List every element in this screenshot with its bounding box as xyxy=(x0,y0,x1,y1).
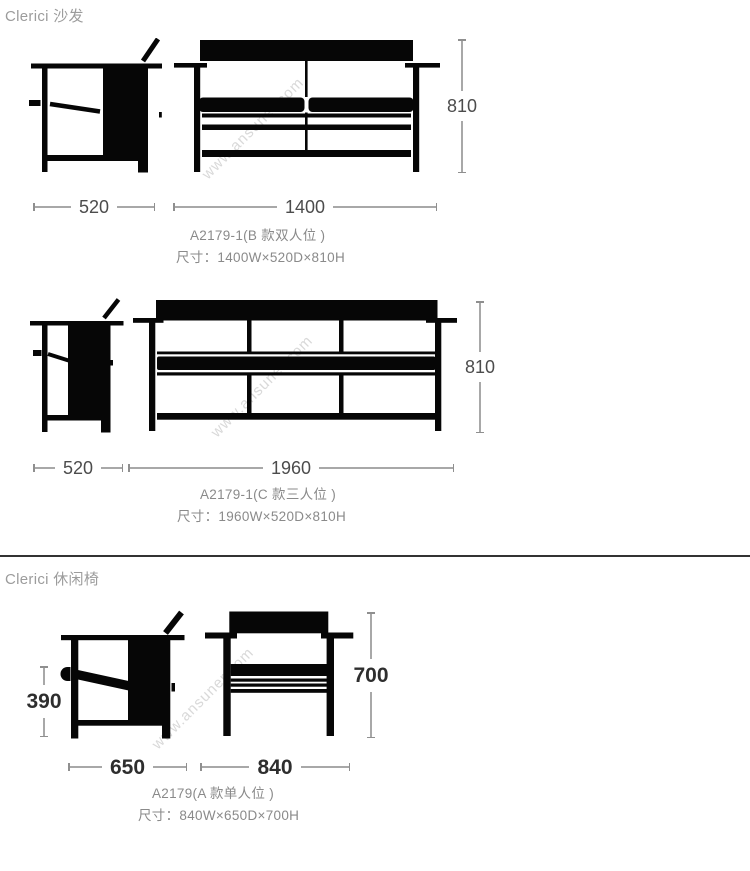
dim-line xyxy=(175,206,277,207)
seat-rail-2 xyxy=(202,125,411,131)
section-heading-chair: Clerici 休闲椅 xyxy=(5,568,99,589)
bottom-stretcher xyxy=(71,720,170,726)
dim-depth-chair: 650 xyxy=(68,755,187,779)
section-heading-sofa: Clerici 沙发 xyxy=(5,5,84,26)
bottom-stretcher xyxy=(42,155,148,161)
seat-rail-diagonal xyxy=(50,104,100,112)
dim-value: 520 xyxy=(71,198,117,216)
armrest-knob xyxy=(33,350,42,356)
armrest-bar xyxy=(61,635,185,640)
dim-line xyxy=(461,121,462,172)
seat-rail-diagonal xyxy=(48,354,69,361)
seat-rail-1 xyxy=(231,679,329,682)
dim-depth-2seat: 520 xyxy=(33,197,155,217)
dim-line xyxy=(35,206,71,207)
seat-rail-diagonal xyxy=(78,670,129,691)
bottom-stretcher xyxy=(42,415,111,421)
armrest-left xyxy=(205,633,237,639)
seat-rail xyxy=(157,372,436,375)
seat-edge-tick xyxy=(172,683,176,692)
armrest-bar xyxy=(31,64,162,69)
armrest-knob xyxy=(29,100,41,106)
size-label-3seat: 尺寸：1960W×520D×810H xyxy=(177,505,346,525)
dim-line xyxy=(130,467,263,468)
seat-cushion-band xyxy=(157,357,436,371)
sofa-3seat-side-view-drawing xyxy=(29,298,125,434)
furniture-spec-sheet: www.ansuner.com www.ansuner.com www.ansu… xyxy=(0,0,750,871)
dim-value: 390 xyxy=(26,685,61,718)
backrest xyxy=(229,612,328,634)
size-label-chair: 尺寸：840W×650D×700H xyxy=(138,804,299,824)
center-divider-upper xyxy=(305,61,308,97)
dim-line xyxy=(479,382,480,432)
dim-tick xyxy=(367,737,375,739)
back-panel xyxy=(103,69,148,156)
armrest-bar xyxy=(30,321,124,326)
model-label-3seat: A2179-1(C 款三人位 ) xyxy=(200,483,336,503)
armrest-right xyxy=(405,63,440,68)
back-panel xyxy=(68,326,111,416)
dim-value: 810 xyxy=(447,91,477,121)
dim-line xyxy=(43,718,44,736)
dim-value: 1400 xyxy=(277,198,333,216)
dim-line xyxy=(153,766,185,767)
seat-top-rail xyxy=(157,352,436,355)
rear-leg xyxy=(162,720,170,739)
backrest-diagonal xyxy=(143,39,158,61)
divider-right-lower xyxy=(339,376,344,414)
leg-right xyxy=(413,63,419,172)
dim-tick xyxy=(154,203,156,211)
dim-value: 520 xyxy=(55,459,101,477)
dim-value: 650 xyxy=(102,757,153,778)
dim-line xyxy=(370,692,371,737)
sofa-2seat-side-view-drawing xyxy=(29,38,164,174)
backrest xyxy=(156,300,438,321)
seat-rail-3 xyxy=(231,689,329,693)
dim-tick xyxy=(476,432,484,434)
seat-rail-1 xyxy=(202,114,411,118)
dim-line xyxy=(43,668,44,686)
center-divider-lower xyxy=(305,113,308,153)
dim-tick xyxy=(436,203,438,211)
armrest-left xyxy=(133,318,164,323)
leg-left xyxy=(149,322,155,431)
backrest-diagonal xyxy=(166,613,182,634)
dim-value: 700 xyxy=(353,659,388,692)
dim-width-2seat: 1400 xyxy=(173,197,437,217)
seat-cushion xyxy=(231,664,329,676)
dim-depth-3seat: 520 xyxy=(33,458,123,478)
dim-height-chair: 700 xyxy=(351,612,391,738)
divider-left-upper xyxy=(247,320,252,352)
dim-line xyxy=(479,303,480,353)
dim-width-3seat: 1960 xyxy=(128,458,454,478)
leg-right xyxy=(327,638,334,736)
dim-tick xyxy=(458,172,466,174)
back-panel xyxy=(128,640,170,720)
armrest-left xyxy=(174,63,207,68)
section-divider-line xyxy=(0,555,750,557)
rear-leg xyxy=(101,415,111,433)
dim-line xyxy=(202,766,250,767)
dim-tick xyxy=(186,763,188,771)
dim-tick xyxy=(40,736,48,738)
sofa-3seat-front-view-drawing xyxy=(128,298,458,434)
seat-rail-2 xyxy=(231,684,329,687)
leg-left xyxy=(223,638,230,736)
dim-value: 810 xyxy=(465,352,495,382)
dim-tick xyxy=(122,464,124,472)
model-label-2seat: A2179-1(B 款双人位 ) xyxy=(190,224,325,244)
leg-left xyxy=(194,63,200,172)
dim-line xyxy=(333,206,435,207)
armrest-right xyxy=(426,318,457,323)
dim-value: 1960 xyxy=(263,459,319,477)
dim-line xyxy=(70,766,102,767)
armrest-right xyxy=(321,633,353,639)
dim-line xyxy=(301,766,349,767)
rear-leg xyxy=(138,155,148,173)
sofa-2seat-front-view-drawing xyxy=(174,38,440,174)
dim-line xyxy=(117,206,153,207)
backrest xyxy=(200,40,413,61)
dim-line xyxy=(461,41,462,92)
size-label-2seat: 尺寸：1400W×520D×810H xyxy=(176,246,345,266)
dim-line xyxy=(319,467,452,468)
dim-line xyxy=(370,614,371,659)
bottom-stretcher xyxy=(202,150,411,157)
divider-left-lower xyxy=(247,376,252,414)
dim-tick xyxy=(349,763,351,771)
dim-tick xyxy=(453,464,455,472)
model-label-chair: A2179(A 款单人位 ) xyxy=(152,782,274,802)
seat-cushion-right xyxy=(309,98,414,113)
dim-line xyxy=(101,467,121,468)
seat-edge-tick xyxy=(111,360,114,366)
backrest-diagonal xyxy=(104,300,119,319)
dim-width-chair: 840 xyxy=(200,755,350,779)
dim-seat-height-chair: 390 xyxy=(24,666,64,737)
dim-height-2seat: 810 xyxy=(445,39,479,173)
leg-right xyxy=(435,322,441,431)
chair-front-view-drawing xyxy=(204,609,355,737)
chair-side-view-drawing xyxy=(59,610,186,740)
seat-edge-tick xyxy=(159,112,162,118)
seat-cushion-left xyxy=(199,98,305,113)
dim-value: 840 xyxy=(249,757,300,778)
dim-line xyxy=(35,467,55,468)
divider-right-upper xyxy=(339,320,344,352)
dim-height-3seat: 810 xyxy=(463,301,497,433)
bottom-stretcher xyxy=(157,413,436,420)
